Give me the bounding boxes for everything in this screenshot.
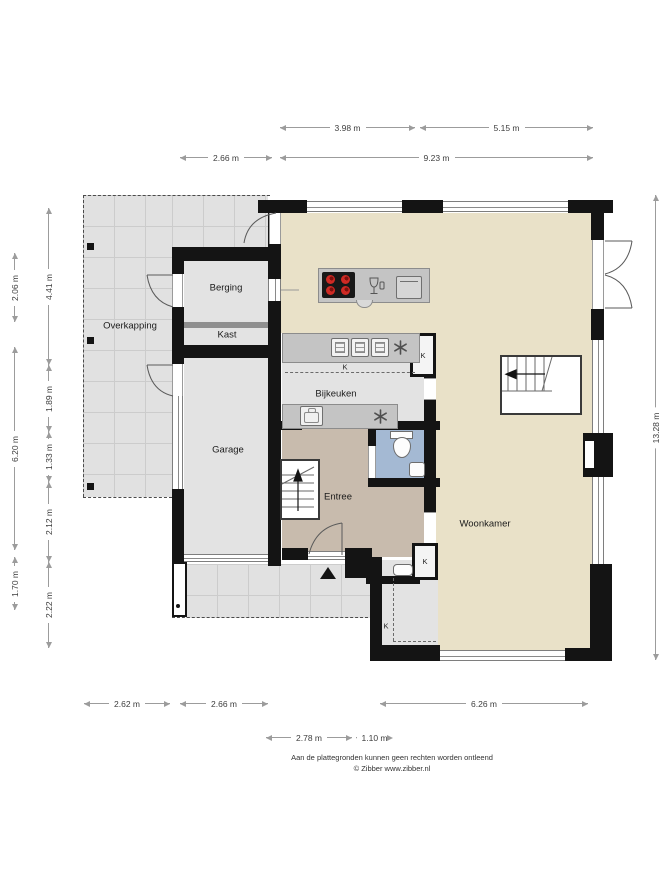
wall — [568, 200, 613, 213]
dimension-top: 2.66 m — [180, 157, 272, 158]
dimension-label: 2.66 m — [206, 699, 242, 709]
dimension-label: 1.10 m — [357, 733, 393, 743]
wall — [172, 307, 184, 322]
door-opening-berging — [172, 274, 183, 307]
dimension-left: 1.33 m — [48, 432, 49, 482]
dimension-label: 6.20 m — [10, 431, 20, 467]
closet-label: K — [422, 557, 427, 566]
dimension-label: 6.26 m — [466, 699, 502, 709]
porch-edge-bottom — [172, 617, 368, 618]
dimension-label: 13.28 m — [651, 407, 661, 448]
dimension-bottom: 2.66 m — [180, 703, 268, 704]
dimension-label: 2.12 m — [44, 504, 54, 540]
bijkeuken-dashed-line — [285, 372, 415, 373]
closet-label: K — [420, 351, 425, 360]
overkapping-post — [87, 243, 94, 250]
burner-icon — [326, 275, 335, 284]
corner-closet-dash-v — [393, 578, 394, 641]
fireplace-notch — [585, 441, 594, 468]
wall — [345, 548, 372, 578]
dimension-left: 1.70 m — [14, 557, 15, 610]
dimension-bottom: 1.10 m — [356, 737, 393, 738]
dimension-label: 1.33 m — [44, 439, 54, 475]
wall — [368, 430, 376, 446]
disclaimer-text: Aan de plattegronden kunnen geen rechten… — [291, 753, 493, 762]
dimension-label: 2.78 m — [291, 733, 327, 743]
wall — [172, 247, 281, 261]
overkapping-floor — [83, 195, 172, 497]
wall — [172, 489, 184, 554]
corner-closet-floor — [380, 578, 438, 646]
island-sink-icon — [396, 276, 422, 299]
sink-icon — [300, 406, 323, 426]
dimension-left: 2.06 m — [14, 253, 15, 322]
window — [443, 201, 568, 212]
dimension-label: 1.70 m — [10, 566, 20, 602]
dimension-left: 2.12 m — [48, 482, 49, 562]
kast-separator — [184, 322, 268, 328]
dimension-label: 5.15 m — [489, 123, 525, 133]
door-opening-garage — [172, 364, 183, 396]
burner-icon — [326, 286, 335, 295]
room-label-garage: Garage — [212, 445, 244, 456]
dimension-label: 2.66 m — [208, 153, 244, 163]
window — [440, 650, 565, 661]
cooktop-icon — [322, 272, 355, 298]
closet-k-bottom: K — [412, 543, 438, 580]
overkapping-edge-left — [83, 195, 84, 497]
niche-sink-icon — [393, 564, 413, 576]
dimension-label: 2.06 m — [10, 270, 20, 306]
dimension-bottom: 2.78 m — [266, 737, 352, 738]
wall-opening — [424, 378, 436, 400]
wall — [268, 552, 281, 566]
overkapping-edge-bottom — [83, 497, 172, 498]
closet-label: K — [342, 363, 347, 372]
wall — [591, 309, 604, 340]
garage-floor — [184, 358, 268, 554]
dimension-top: 3.98 m — [280, 127, 415, 128]
dimension-label: 4.41 m — [44, 269, 54, 305]
appliance-icon — [351, 338, 369, 357]
stairs-entree — [280, 459, 320, 520]
wall — [590, 564, 612, 650]
dimension-left: 1.89 m — [48, 365, 49, 432]
wall — [172, 322, 184, 345]
wall — [258, 200, 307, 213]
room-label-kast: Kast — [217, 330, 236, 341]
room-label-berging: Berging — [210, 283, 243, 294]
drainpipe-dot — [176, 604, 180, 608]
room-label-woonkamer: Woonkamer — [459, 519, 510, 530]
porch-column — [172, 562, 187, 617]
dimension-label: 2.22 m — [44, 587, 54, 623]
front-door-threshold — [308, 551, 345, 560]
burner-icon — [341, 275, 350, 284]
wall — [402, 200, 443, 213]
floorplan-canvas: K K — [0, 0, 668, 890]
wall — [282, 548, 308, 560]
interior-window — [268, 279, 281, 301]
corner-closet-dash-h — [393, 641, 436, 642]
room-label-entree: Entree — [324, 492, 352, 503]
copyright-text: © Zibber www.zibber.nl — [354, 764, 431, 773]
entrance-marker-icon — [320, 567, 336, 579]
dimension-left: 4.41 m — [48, 208, 49, 365]
dimension-bottom: 6.26 m — [380, 703, 588, 704]
burner-icon — [341, 286, 350, 295]
dimension-bottom: 2.62 m — [84, 703, 170, 704]
room-label-overkapping: Overkapping — [103, 321, 157, 332]
wall — [565, 648, 612, 661]
closet-label: K — [383, 622, 388, 631]
window — [592, 477, 604, 564]
dimension-left: 2.22 m — [48, 562, 49, 648]
window — [307, 201, 402, 212]
door-arc — [605, 241, 632, 274]
dimension-top: 9.23 m — [280, 157, 593, 158]
room-label-bijkeuken: Bijkeuken — [315, 389, 356, 400]
window — [592, 340, 604, 433]
dimension-right: 13.28 m — [655, 195, 656, 660]
overkapping-post — [87, 337, 94, 344]
dimension-top: 5.15 m — [420, 127, 593, 128]
wall-opening — [424, 512, 436, 547]
wall — [172, 345, 281, 358]
toilet-door-opening — [368, 446, 376, 478]
appliance-icon — [331, 338, 349, 357]
overkapping-post — [87, 483, 94, 490]
appliance-icon — [371, 338, 389, 357]
window — [172, 396, 183, 489]
garage-door — [184, 554, 268, 562]
wall — [591, 213, 604, 240]
double-door-opening — [592, 240, 604, 309]
stairs-woonkamer — [500, 355, 582, 415]
door-opening-kitchen-west — [269, 213, 281, 244]
dimension-label: 9.23 m — [419, 153, 455, 163]
toilet-sink — [409, 462, 425, 477]
dimension-label: 1.89 m — [44, 381, 54, 417]
dimension-label: 3.98 m — [330, 123, 366, 133]
overkapping-edge-top — [83, 195, 270, 196]
wall — [172, 261, 184, 274]
overkapping-floor-strip — [172, 195, 268, 247]
dimension-label: 2.62 m — [109, 699, 145, 709]
dimension-left: 6.20 m — [14, 347, 15, 550]
door-arc — [605, 275, 632, 308]
